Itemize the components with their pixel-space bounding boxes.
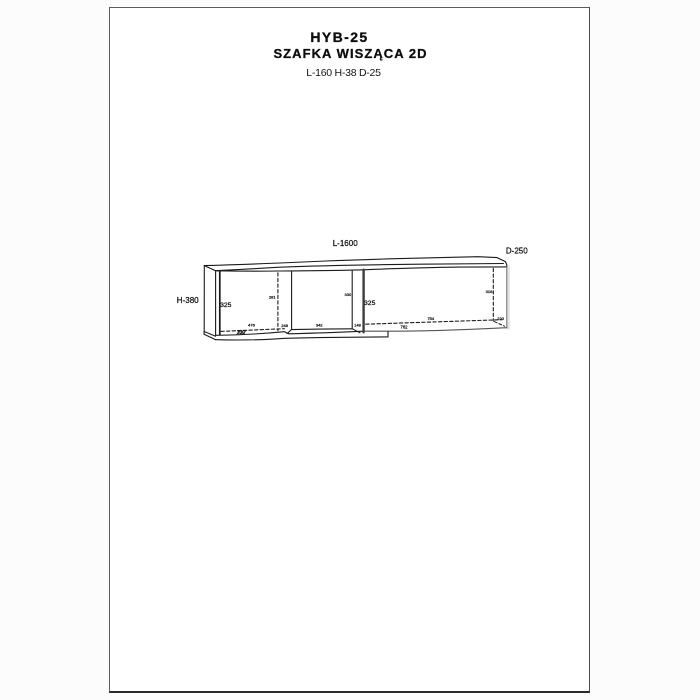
svg-text:281: 281 [269,295,276,300]
svg-text:318: 318 [486,289,493,294]
svg-text:762: 762 [401,324,409,329]
svg-text:325: 325 [220,302,232,309]
svg-text:325: 325 [364,300,376,307]
svg-text:754: 754 [427,316,434,321]
svg-text:H-380: H-380 [177,296,199,305]
svg-text:D-250: D-250 [506,246,528,255]
svg-text:L-1600: L-1600 [333,239,358,248]
svg-text:330: 330 [345,292,352,297]
svg-text:248: 248 [281,323,288,328]
svg-text:342: 342 [316,323,323,328]
svg-text:220: 220 [497,316,504,321]
svg-text:476: 476 [248,323,255,328]
svg-text:148: 148 [354,323,361,328]
